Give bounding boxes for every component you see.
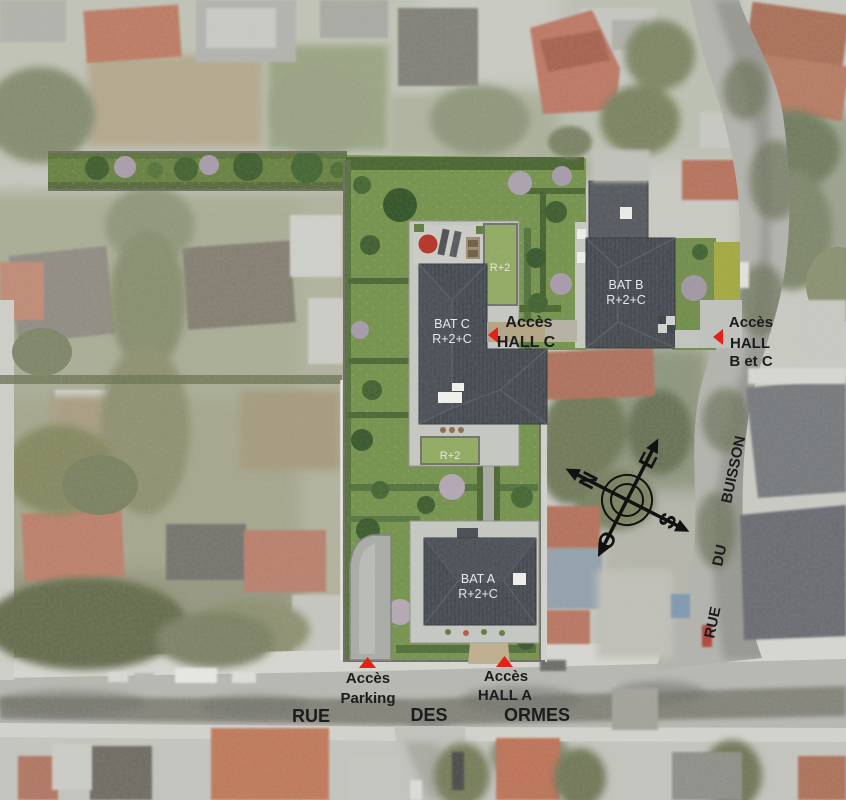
svg-text:Accès: Accès: [729, 314, 773, 331]
svg-text:ORMES: ORMES: [504, 705, 570, 725]
svg-text:RUE: RUE: [292, 706, 330, 726]
svg-text:Accès: Accès: [505, 314, 552, 331]
svg-text:DES: DES: [410, 705, 447, 725]
svg-text:B et C: B et C: [729, 353, 773, 370]
svg-text:Accès: Accès: [484, 668, 528, 685]
svg-text:HALL C: HALL C: [497, 334, 556, 351]
svg-text:HALL A: HALL A: [478, 687, 532, 704]
svg-text:Parking: Parking: [340, 690, 395, 707]
svg-text:Accès: Accès: [346, 670, 390, 687]
svg-text:HALL: HALL: [730, 335, 770, 352]
